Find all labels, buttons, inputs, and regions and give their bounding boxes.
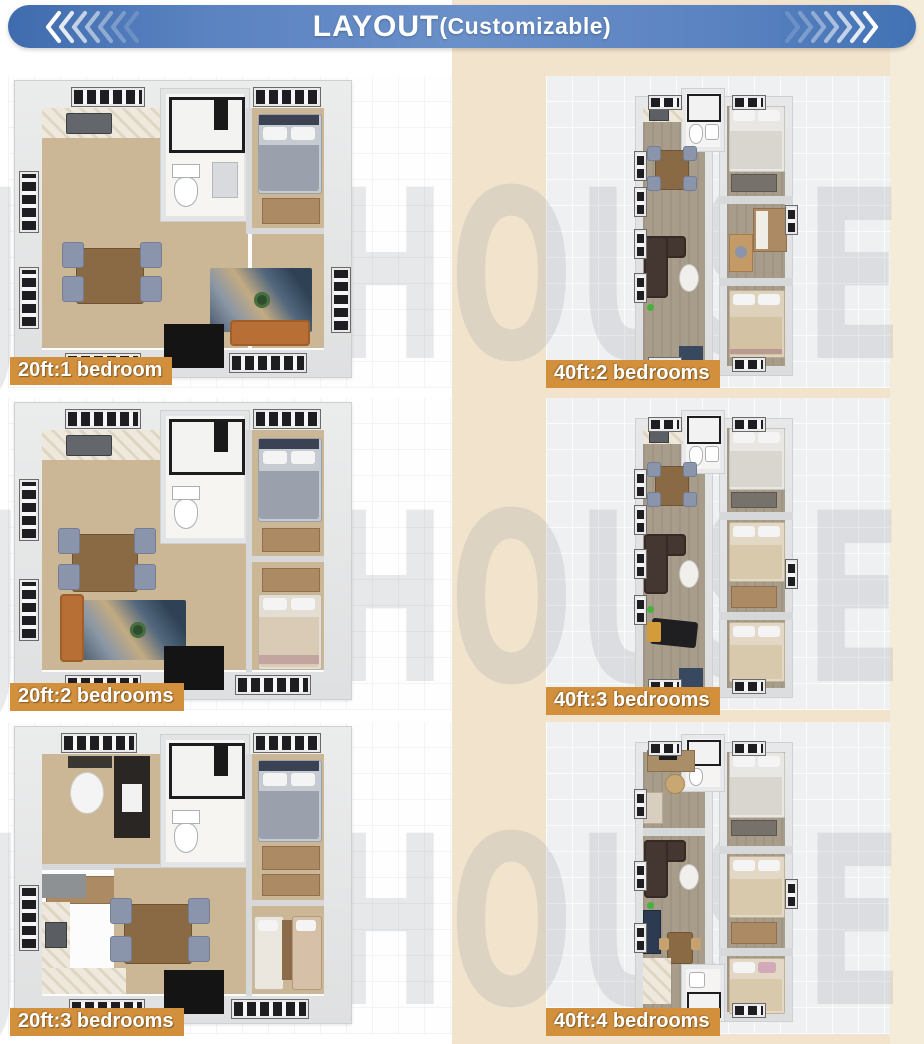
- pillow: [291, 451, 315, 464]
- pillow: [758, 110, 780, 121]
- headboard: [259, 439, 319, 449]
- chair: [58, 564, 80, 590]
- layout-poster: JOY HOUSE JOY HOUSE JOY HOUSE LAYOUT(Cus…: [0, 0, 924, 1044]
- range-hood: [42, 874, 86, 898]
- plan-label: 40ft:2 bedrooms: [546, 360, 720, 388]
- pillow: [758, 860, 780, 871]
- chair: [683, 146, 697, 161]
- sofa: [60, 594, 84, 662]
- status-light: [647, 902, 654, 909]
- pillow: [733, 432, 755, 443]
- chair: [140, 242, 162, 268]
- bed: [729, 428, 785, 490]
- shower: [169, 743, 245, 799]
- closet-door: [756, 211, 768, 249]
- toilet: [174, 177, 198, 207]
- shower-rack: [214, 422, 228, 452]
- pillow: [263, 598, 287, 610]
- window: [733, 1004, 765, 1017]
- header-title: LAYOUT: [313, 10, 440, 44]
- blanket: [730, 131, 782, 169]
- bathroom-sink: [705, 446, 719, 462]
- left-chevrons-icon: [44, 10, 164, 44]
- pillow: [733, 756, 755, 767]
- blanket-trim: [259, 655, 319, 664]
- bathroom-vanity: [212, 162, 238, 198]
- bedroom-wall: [719, 278, 793, 286]
- tan-background-strip: [890, 0, 924, 1044]
- bed: [729, 856, 785, 918]
- sofa: [644, 534, 668, 594]
- dresser: [262, 198, 320, 224]
- desk-chair: [735, 246, 747, 258]
- chair: [188, 936, 210, 962]
- dining-table: [76, 248, 144, 304]
- single-bed: [292, 916, 322, 990]
- pillow: [758, 432, 780, 443]
- chair: [647, 146, 661, 161]
- bedroom-wall: [252, 556, 324, 562]
- window: [232, 1000, 308, 1018]
- pillow: [291, 598, 315, 610]
- plan-label: 40ft:3 bedrooms: [546, 687, 720, 715]
- toilet-tank: [172, 486, 200, 500]
- pillow: [258, 920, 278, 931]
- window: [254, 410, 320, 428]
- window: [649, 96, 681, 109]
- window: [635, 274, 646, 302]
- window: [62, 734, 136, 752]
- pillow: [733, 626, 755, 637]
- chair: [62, 242, 84, 268]
- pillow: [291, 127, 315, 140]
- window: [635, 230, 646, 258]
- window: [20, 268, 38, 328]
- chair: [691, 938, 701, 950]
- bed: [258, 594, 322, 670]
- shower: [687, 94, 721, 122]
- desk-chair: [665, 774, 685, 794]
- bedroom-wall: [252, 900, 324, 906]
- sofa: [644, 236, 668, 298]
- stove: [45, 922, 67, 948]
- window: [635, 188, 646, 216]
- bed: [258, 438, 322, 522]
- header-subtitle: (Customizable): [439, 13, 611, 40]
- kitchen-sink: [66, 435, 112, 456]
- pillow: [263, 773, 287, 786]
- bedroom-wall: [719, 196, 793, 204]
- bathroom-sink: [689, 972, 705, 988]
- floorplan-20ft-1-bedroom: [14, 80, 352, 378]
- chair: [647, 492, 661, 507]
- plant: [254, 292, 270, 308]
- plan-label: 20ft:3 bedrooms: [10, 1008, 184, 1036]
- entry-door-mat: [679, 668, 703, 688]
- entry-door-mat: [164, 324, 224, 368]
- status-light: [647, 606, 654, 613]
- blanket: [730, 879, 782, 915]
- tv-cabinet: [731, 174, 777, 192]
- window: [649, 742, 681, 755]
- window: [20, 580, 38, 640]
- floorplan-40ft-4-bedrooms: [635, 734, 793, 1022]
- floorplan-40ft-3-bedrooms: [635, 410, 793, 698]
- shower-rack: [214, 746, 228, 776]
- window: [635, 506, 646, 534]
- window: [733, 418, 765, 431]
- chair: [134, 528, 156, 554]
- right-chevrons-icon: [760, 10, 880, 44]
- dresser: [262, 528, 320, 552]
- plant: [130, 622, 146, 638]
- pillow-accent: [758, 962, 776, 973]
- room-wall: [643, 828, 705, 836]
- status-light: [647, 304, 654, 311]
- chair: [188, 898, 210, 924]
- window: [649, 418, 681, 431]
- blanket: [730, 545, 782, 579]
- plan-label: 20ft:1 bedroom: [10, 357, 172, 385]
- bed: [258, 760, 322, 842]
- window: [230, 354, 306, 372]
- pillow: [733, 962, 755, 973]
- blanket: [259, 791, 319, 839]
- window: [254, 88, 320, 106]
- window: [733, 680, 765, 693]
- window: [635, 596, 646, 624]
- window: [635, 862, 646, 890]
- window: [635, 790, 646, 818]
- window: [20, 886, 38, 950]
- kitchen-sink: [649, 431, 669, 443]
- dresser: [731, 922, 777, 944]
- section-header-banner: LAYOUT(Customizable): [8, 5, 916, 48]
- dresser: [262, 568, 320, 592]
- cabinet: [643, 792, 663, 824]
- toilet: [689, 124, 703, 144]
- dresser: [262, 874, 320, 896]
- floorplan-20ft-2-bedrooms: [14, 402, 352, 700]
- window: [20, 480, 38, 540]
- coffee-table: [679, 864, 699, 890]
- window: [254, 734, 320, 752]
- window: [733, 96, 765, 109]
- bathroom-sink: [705, 124, 719, 140]
- chair: [647, 176, 661, 191]
- floorplan-40ft-2-bedrooms: [635, 88, 793, 376]
- floorplan-20ft-3-bedrooms: [14, 726, 352, 1024]
- plan-label: 20ft:2 bedrooms: [10, 683, 184, 711]
- chair: [683, 176, 697, 191]
- window: [66, 410, 140, 428]
- coffee-table: [679, 560, 699, 588]
- tv-cabinet: [731, 492, 777, 508]
- dining-table: [72, 534, 138, 592]
- chair: [110, 898, 132, 924]
- bed: [729, 522, 785, 582]
- pillow: [263, 451, 287, 464]
- treadmill-console: [647, 622, 661, 642]
- chair: [134, 564, 156, 590]
- bed: [729, 290, 785, 358]
- blanket: [730, 451, 782, 487]
- toilet-tank: [172, 164, 200, 178]
- window: [635, 550, 646, 578]
- dresser: [262, 846, 320, 870]
- blanket: [730, 645, 782, 679]
- kitchen-sink: [649, 109, 669, 121]
- plan-label: 40ft:4 bedrooms: [546, 1008, 720, 1036]
- pillow: [758, 294, 780, 305]
- bedroom-wall: [719, 512, 793, 520]
- desk: [68, 756, 112, 768]
- window: [733, 358, 765, 371]
- pillow: [733, 860, 755, 871]
- dresser: [731, 586, 777, 608]
- chair: [62, 276, 84, 302]
- wardrobe: [114, 756, 150, 838]
- pillow: [263, 127, 287, 140]
- kitchen-counter: [643, 958, 671, 1004]
- window: [635, 924, 646, 952]
- bedroom-wall: [719, 846, 793, 854]
- shower: [687, 416, 721, 444]
- office-chair: [70, 772, 104, 814]
- shower: [169, 97, 245, 153]
- chair: [140, 276, 162, 302]
- window: [236, 676, 310, 694]
- single-bed: [254, 916, 284, 990]
- bedroom-wall: [719, 948, 793, 956]
- window: [786, 206, 797, 234]
- blanket-trim: [730, 349, 782, 354]
- toilet: [174, 823, 198, 853]
- window: [786, 880, 797, 908]
- chair: [659, 938, 669, 950]
- dining-table: [124, 904, 192, 964]
- bed-runner: [282, 920, 292, 980]
- pillow: [758, 756, 780, 767]
- tv-cabinet: [731, 820, 777, 836]
- window: [20, 172, 38, 232]
- blanket: [259, 145, 319, 191]
- window: [733, 742, 765, 755]
- chair: [58, 528, 80, 554]
- pillow: [758, 626, 780, 637]
- pillow: [733, 526, 755, 537]
- shower-rack: [214, 100, 228, 130]
- window: [72, 88, 144, 106]
- bed: [729, 622, 785, 682]
- pillow: [733, 294, 755, 305]
- pillow: [733, 110, 755, 121]
- headboard: [259, 761, 319, 771]
- pillow: [291, 773, 315, 786]
- chair: [110, 936, 132, 962]
- chair: [647, 462, 661, 477]
- bedroom-wall: [719, 612, 793, 620]
- blanket: [730, 777, 782, 815]
- pillow: [296, 920, 316, 931]
- blanket: [259, 471, 319, 519]
- window: [786, 560, 797, 588]
- kitchen-counter: [42, 968, 126, 994]
- closet: [753, 208, 787, 252]
- bed: [258, 114, 322, 194]
- shower: [169, 419, 245, 475]
- sofa: [230, 320, 310, 346]
- chair: [683, 462, 697, 477]
- toilet-tank: [172, 810, 200, 824]
- bed: [729, 106, 785, 172]
- sofa: [644, 840, 668, 898]
- window: [635, 470, 646, 498]
- window: [635, 152, 646, 180]
- headboard: [259, 115, 319, 125]
- window: [332, 268, 350, 332]
- wardrobe-door: [122, 784, 142, 812]
- bed: [729, 752, 785, 818]
- kitchen-sink: [66, 113, 112, 134]
- coffee-table: [679, 264, 699, 292]
- toilet: [174, 499, 198, 529]
- chair: [683, 492, 697, 507]
- pillow: [758, 526, 780, 537]
